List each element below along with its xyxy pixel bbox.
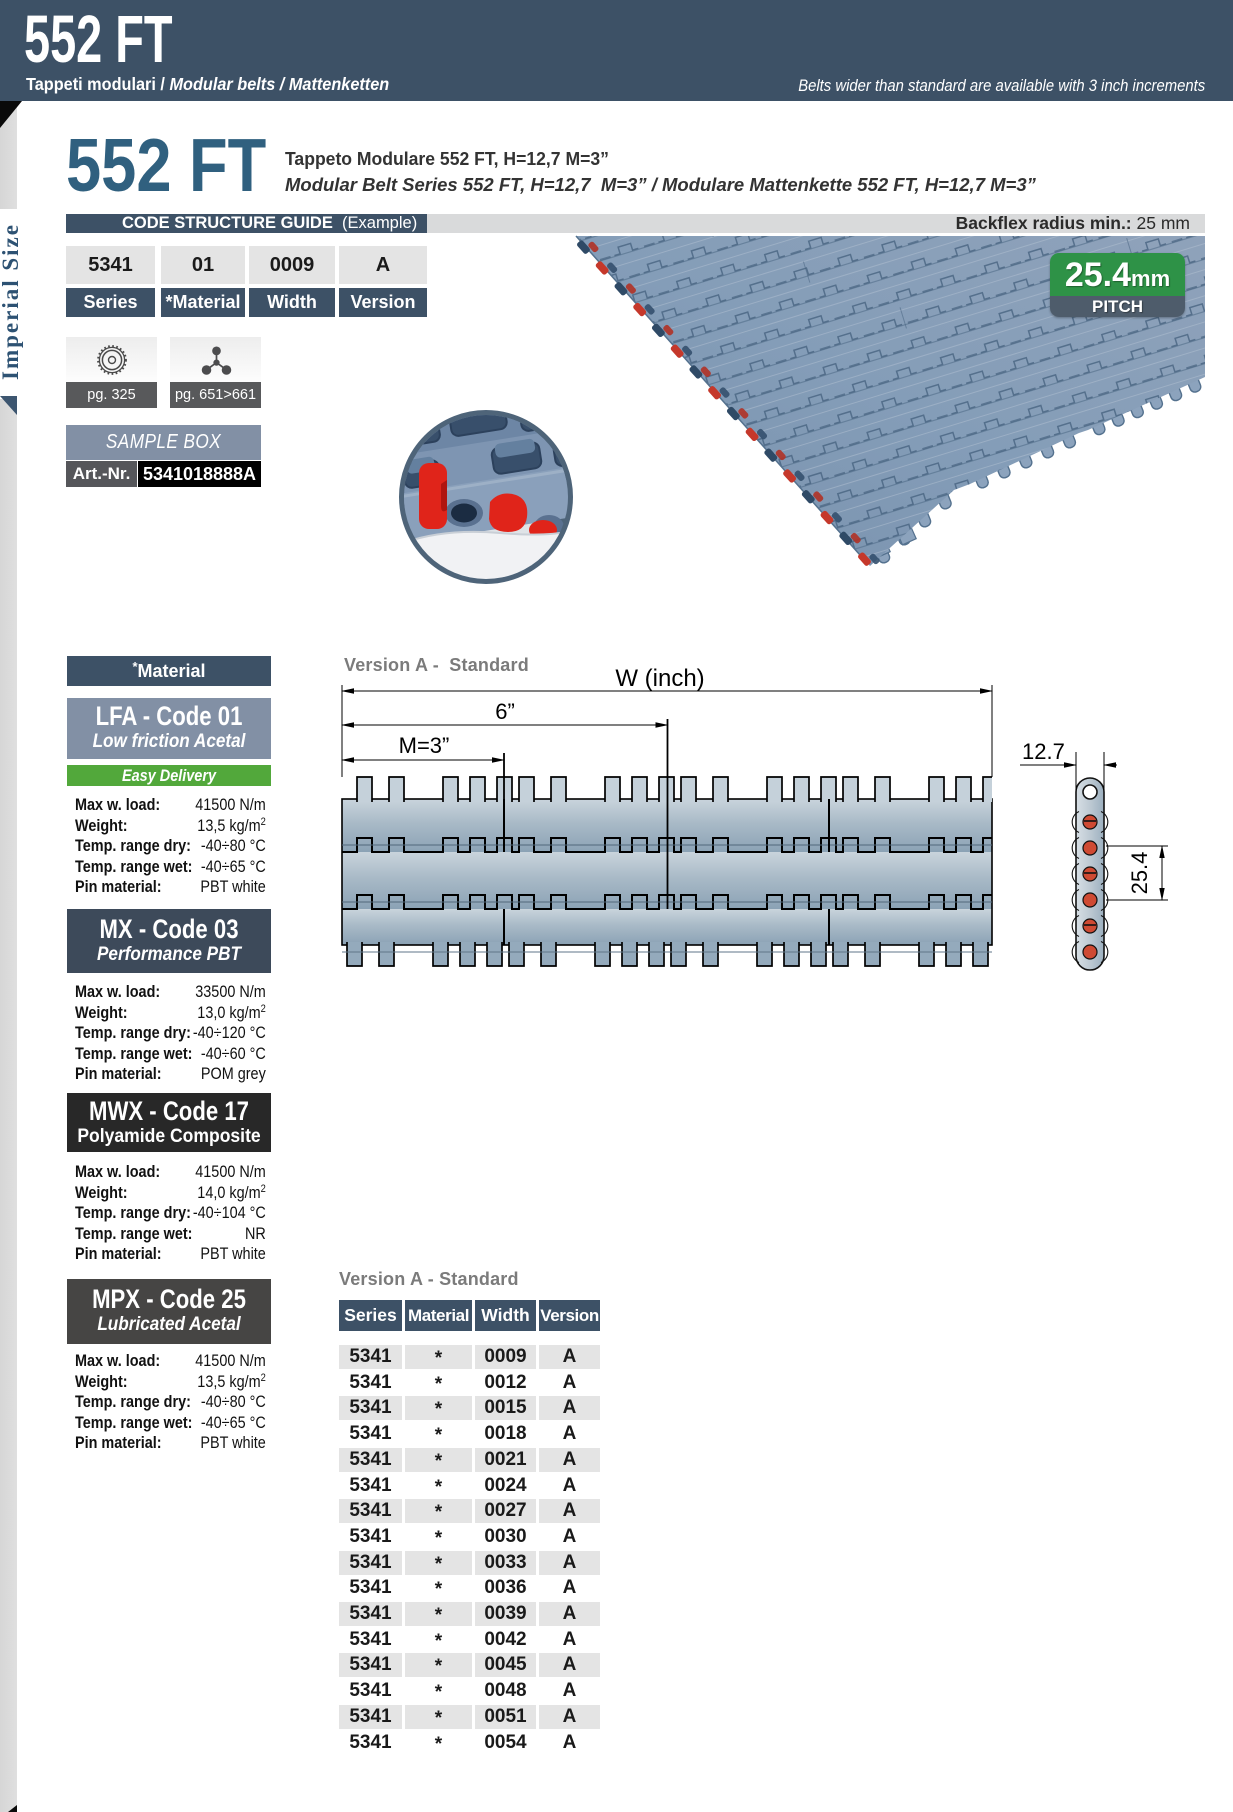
svg-text:M=3”: M=3” — [399, 733, 450, 758]
svg-text:6”: 6” — [495, 699, 515, 724]
svg-text:25.4: 25.4 — [1127, 852, 1152, 895]
svg-text:12.7: 12.7 — [1022, 739, 1065, 764]
svg-text:W (inch): W (inch) — [615, 665, 704, 692]
